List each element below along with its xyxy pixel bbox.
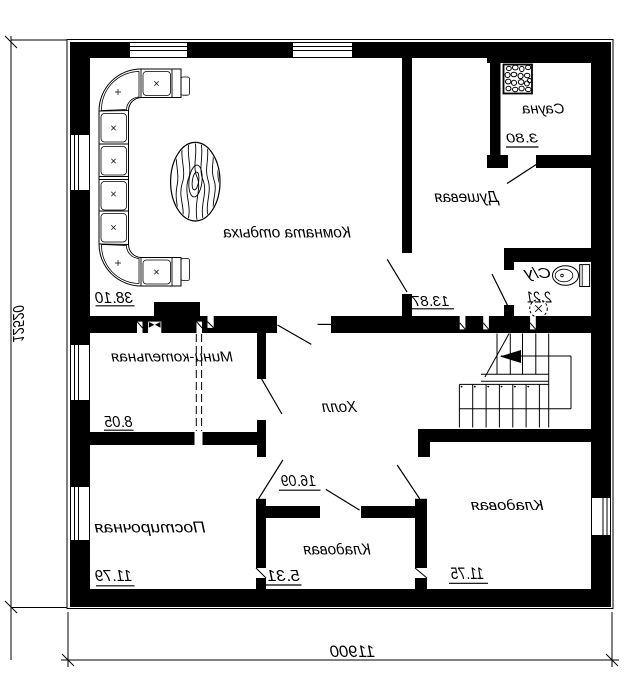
svg-text:11.79: 11.79: [95, 568, 132, 585]
svg-text:Мини-котельная: Мини-котельная: [111, 349, 233, 366]
svg-text:13.87: 13.87: [411, 294, 449, 310]
svg-text:Комната отдыха: Комната отдыха: [223, 225, 351, 242]
svg-text:8.05: 8.05: [104, 414, 132, 431]
svg-text:2.21: 2.21: [526, 289, 552, 306]
svg-text:Кладовая: Кладовая: [303, 542, 371, 559]
svg-text:5.31: 5.31: [267, 568, 300, 585]
svg-text:Душевая: Душевая: [434, 189, 500, 206]
svg-text:12520: 12520: [9, 305, 26, 342]
svg-text:С/у: С/у: [522, 265, 551, 282]
svg-text:11.75: 11.75: [450, 565, 484, 583]
svg-text:Кладовая: Кладовая: [471, 498, 544, 514]
svg-text:38.10: 38.10: [95, 290, 133, 307]
svg-text:16.09: 16.09: [281, 473, 316, 490]
svg-text:11900: 11900: [329, 643, 375, 661]
svg-text:Сауна: Сауна: [522, 102, 565, 118]
svg-text:Холл: Холл: [322, 399, 358, 416]
svg-text:Постирочная: Постирочная: [94, 520, 206, 537]
svg-text:3.80: 3.80: [505, 131, 538, 146]
